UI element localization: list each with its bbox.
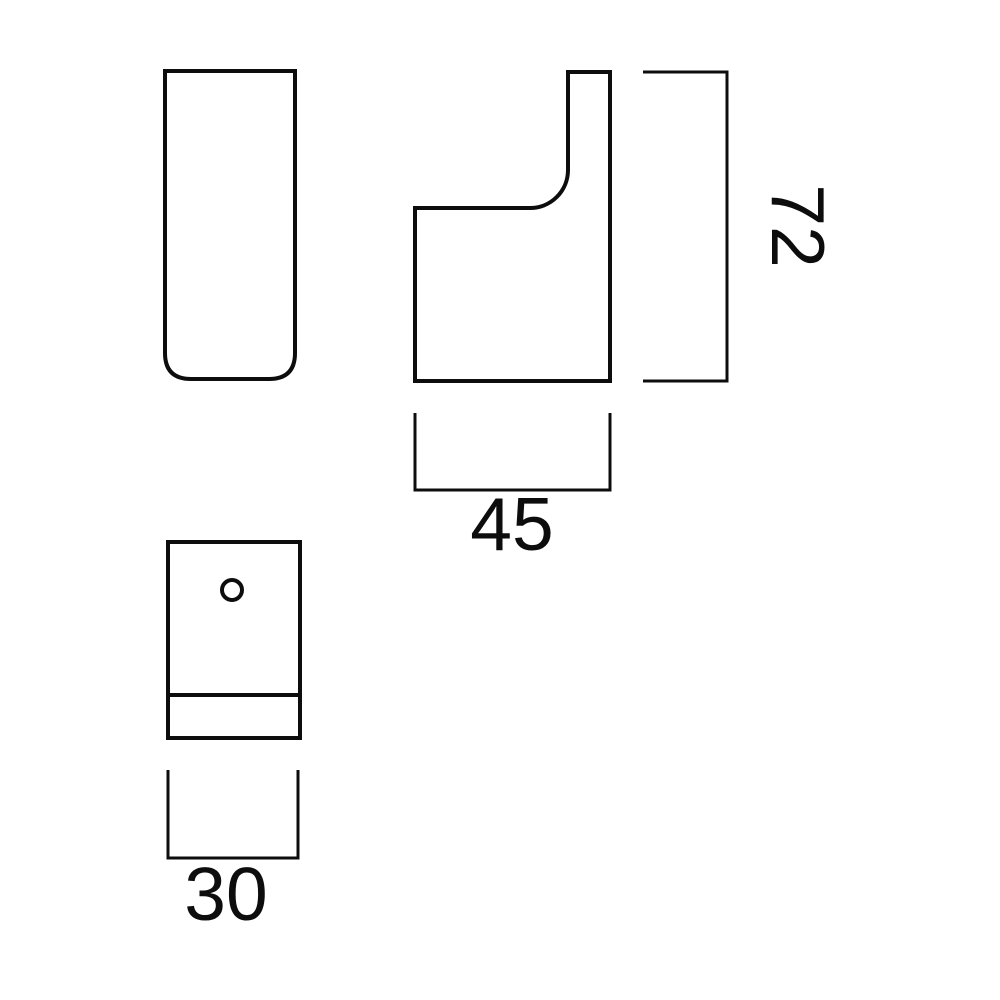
front-view-outline — [165, 71, 295, 379]
dim-height-bracket — [643, 72, 727, 381]
technical-drawing: 72 45 30 — [0, 0, 1000, 1000]
back-plate-outline — [168, 542, 300, 738]
screw-hole-icon — [222, 580, 242, 600]
side-view-outline — [415, 72, 610, 381]
dim-depth-bracket — [415, 413, 610, 490]
drawing-canvas: 72 45 30 — [0, 0, 1000, 1000]
dim-width-label: 30 — [184, 852, 267, 936]
dim-depth-label: 45 — [470, 482, 553, 566]
dim-width-bracket — [168, 770, 298, 858]
dim-height-label: 72 — [756, 184, 840, 267]
